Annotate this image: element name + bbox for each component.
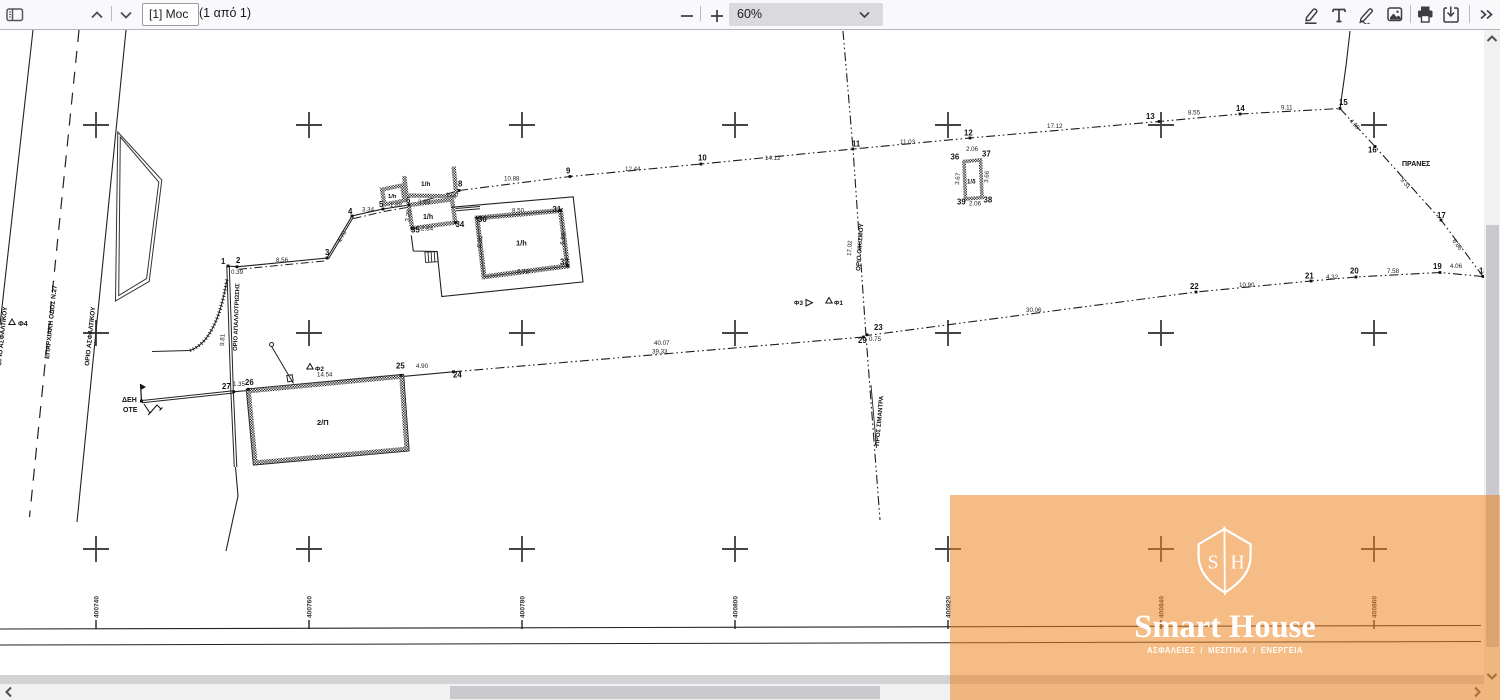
svg-text:8: 8 <box>458 180 463 189</box>
svg-text:2.06: 2.06 <box>969 201 982 208</box>
svg-text:8.56: 8.56 <box>276 257 289 264</box>
svg-text:1/h: 1/h <box>516 239 527 248</box>
svg-text:0.75: 0.75 <box>869 336 882 343</box>
svg-text:26: 26 <box>245 378 254 387</box>
svg-text:0.39: 0.39 <box>231 269 244 276</box>
svg-text:3.99: 3.99 <box>418 199 431 206</box>
svg-text:4.79: 4.79 <box>337 230 349 244</box>
svg-text:30.06: 30.06 <box>1026 307 1042 314</box>
svg-text:3: 3 <box>325 248 330 257</box>
svg-text:10.88: 10.88 <box>504 176 520 183</box>
svg-text:1.88: 1.88 <box>390 202 403 209</box>
svg-text:1: 1 <box>221 257 226 266</box>
svg-text:8.50: 8.50 <box>512 208 525 215</box>
svg-text:1/h: 1/h <box>421 181 430 188</box>
svg-text:3.34: 3.34 <box>362 207 375 214</box>
svg-text:400740: 400740 <box>94 596 101 618</box>
svg-text:6.66: 6.66 <box>1450 238 1463 252</box>
svg-text:2/Π: 2/Π <box>317 418 329 427</box>
svg-text:1/h: 1/h <box>388 194 397 200</box>
svg-text:6: 6 <box>406 196 411 205</box>
svg-text:20: 20 <box>1350 267 1359 276</box>
svg-text:ΔΕΗ: ΔΕΗ <box>122 397 137 404</box>
svg-text:2: 2 <box>236 256 241 265</box>
svg-text:2.84: 2.84 <box>421 226 434 233</box>
svg-text:ΟΡΙΟ ΑΣΦΑΛΤΙΚΟΥ: ΟΡΙΟ ΑΣΦΑΛΤΙΚΟΥ <box>0 306 9 367</box>
svg-text:27: 27 <box>222 382 231 391</box>
svg-text:3.66: 3.66 <box>983 170 991 183</box>
svg-text:16: 16 <box>1368 146 1377 155</box>
svg-text:17.02: 17.02 <box>846 240 854 256</box>
svg-text:32: 32 <box>560 258 569 267</box>
svg-text:1.00: 1.00 <box>446 192 459 199</box>
svg-text:17.12: 17.12 <box>1047 123 1063 130</box>
svg-text:34: 34 <box>456 220 465 229</box>
svg-text:40.07: 40.07 <box>654 340 670 347</box>
svg-text:2.06: 2.06 <box>966 146 979 153</box>
svg-text:7.58: 7.58 <box>1387 268 1400 275</box>
svg-text:H: H <box>1230 553 1244 574</box>
svg-text:Φ3: Φ3 <box>794 300 803 307</box>
svg-text:14.54: 14.54 <box>317 372 333 379</box>
svg-text:39: 39 <box>957 198 966 207</box>
svg-text:4.90: 4.90 <box>416 363 429 370</box>
svg-text:Φ1: Φ1 <box>834 300 843 307</box>
svg-text:1.35: 1.35 <box>233 381 246 388</box>
svg-text:17: 17 <box>1437 211 1446 220</box>
svg-text:24: 24 <box>453 371 462 380</box>
svg-text:S: S <box>1208 553 1219 574</box>
svg-text:ΟΡΙΟ ΑΠΑΛΛΟΤΡΙΩΣΗΣ: ΟΡΙΟ ΑΠΑΛΛΟΤΡΙΩΣΗΣ <box>233 283 241 351</box>
svg-text:11.03: 11.03 <box>900 139 916 146</box>
svg-text:38: 38 <box>984 196 993 205</box>
svg-text:30: 30 <box>478 215 487 224</box>
svg-text:ΟΡΙΟ ΟΙΚΙΣΜΟΥ: ΟΡΙΟ ΟΙΚΙΣΜΟΥ <box>855 222 865 271</box>
svg-text:1/δ: 1/δ <box>967 180 976 186</box>
svg-text:10: 10 <box>698 154 707 163</box>
svg-text:39.33: 39.33 <box>652 349 668 356</box>
svg-text:14: 14 <box>1236 104 1245 113</box>
svg-text:400780: 400780 <box>520 596 527 618</box>
svg-text:9.31: 9.31 <box>1399 177 1413 191</box>
svg-text:3.67: 3.67 <box>954 172 962 185</box>
svg-text:14.12: 14.12 <box>765 155 781 162</box>
svg-text:ΕΠΑΡΧΙΑΚΗ ΟΔΟΣ Ν.27: ΕΠΑΡΧΙΑΚΗ ΟΔΟΣ Ν.27 <box>44 285 59 360</box>
svg-text:36: 36 <box>951 153 960 162</box>
svg-text:13: 13 <box>1146 112 1155 121</box>
svg-text:9.81: 9.81 <box>219 333 227 346</box>
svg-text:6.70: 6.70 <box>517 269 530 276</box>
svg-text:1/h: 1/h <box>423 214 433 221</box>
svg-text:Φ4: Φ4 <box>18 321 28 328</box>
svg-text:4.32: 4.32 <box>1326 274 1339 281</box>
svg-text:12.44: 12.44 <box>625 166 641 173</box>
svg-text:25: 25 <box>396 362 405 371</box>
svg-text:21: 21 <box>1305 272 1314 281</box>
svg-text:400800: 400800 <box>733 596 740 618</box>
svg-text:9: 9 <box>566 167 571 176</box>
svg-text:31: 31 <box>553 205 562 214</box>
svg-text:4: 4 <box>348 207 353 216</box>
svg-text:ΠΡΑΝΕΣ: ΠΡΑΝΕΣ <box>1402 161 1430 168</box>
svg-text:400760: 400760 <box>307 596 314 618</box>
svg-text:9.11: 9.11 <box>1281 105 1293 112</box>
svg-text:29: 29 <box>858 336 867 345</box>
svg-text:5: 5 <box>379 200 384 209</box>
svg-text:37: 37 <box>982 150 991 159</box>
svg-text:15: 15 <box>1339 98 1348 107</box>
svg-text:10.90: 10.90 <box>1239 282 1255 289</box>
svg-text:19: 19 <box>1433 262 1442 271</box>
svg-text:4.06: 4.06 <box>1450 263 1463 270</box>
svg-text:ΟΤΕ: ΟΤΕ <box>123 407 138 414</box>
svg-text:8.55: 8.55 <box>1188 110 1201 117</box>
svg-text:35: 35 <box>411 226 420 235</box>
svg-text:12: 12 <box>964 129 973 138</box>
svg-text:11: 11 <box>852 140 861 149</box>
svg-text:22: 22 <box>1190 282 1199 291</box>
svg-text:23: 23 <box>874 323 883 332</box>
